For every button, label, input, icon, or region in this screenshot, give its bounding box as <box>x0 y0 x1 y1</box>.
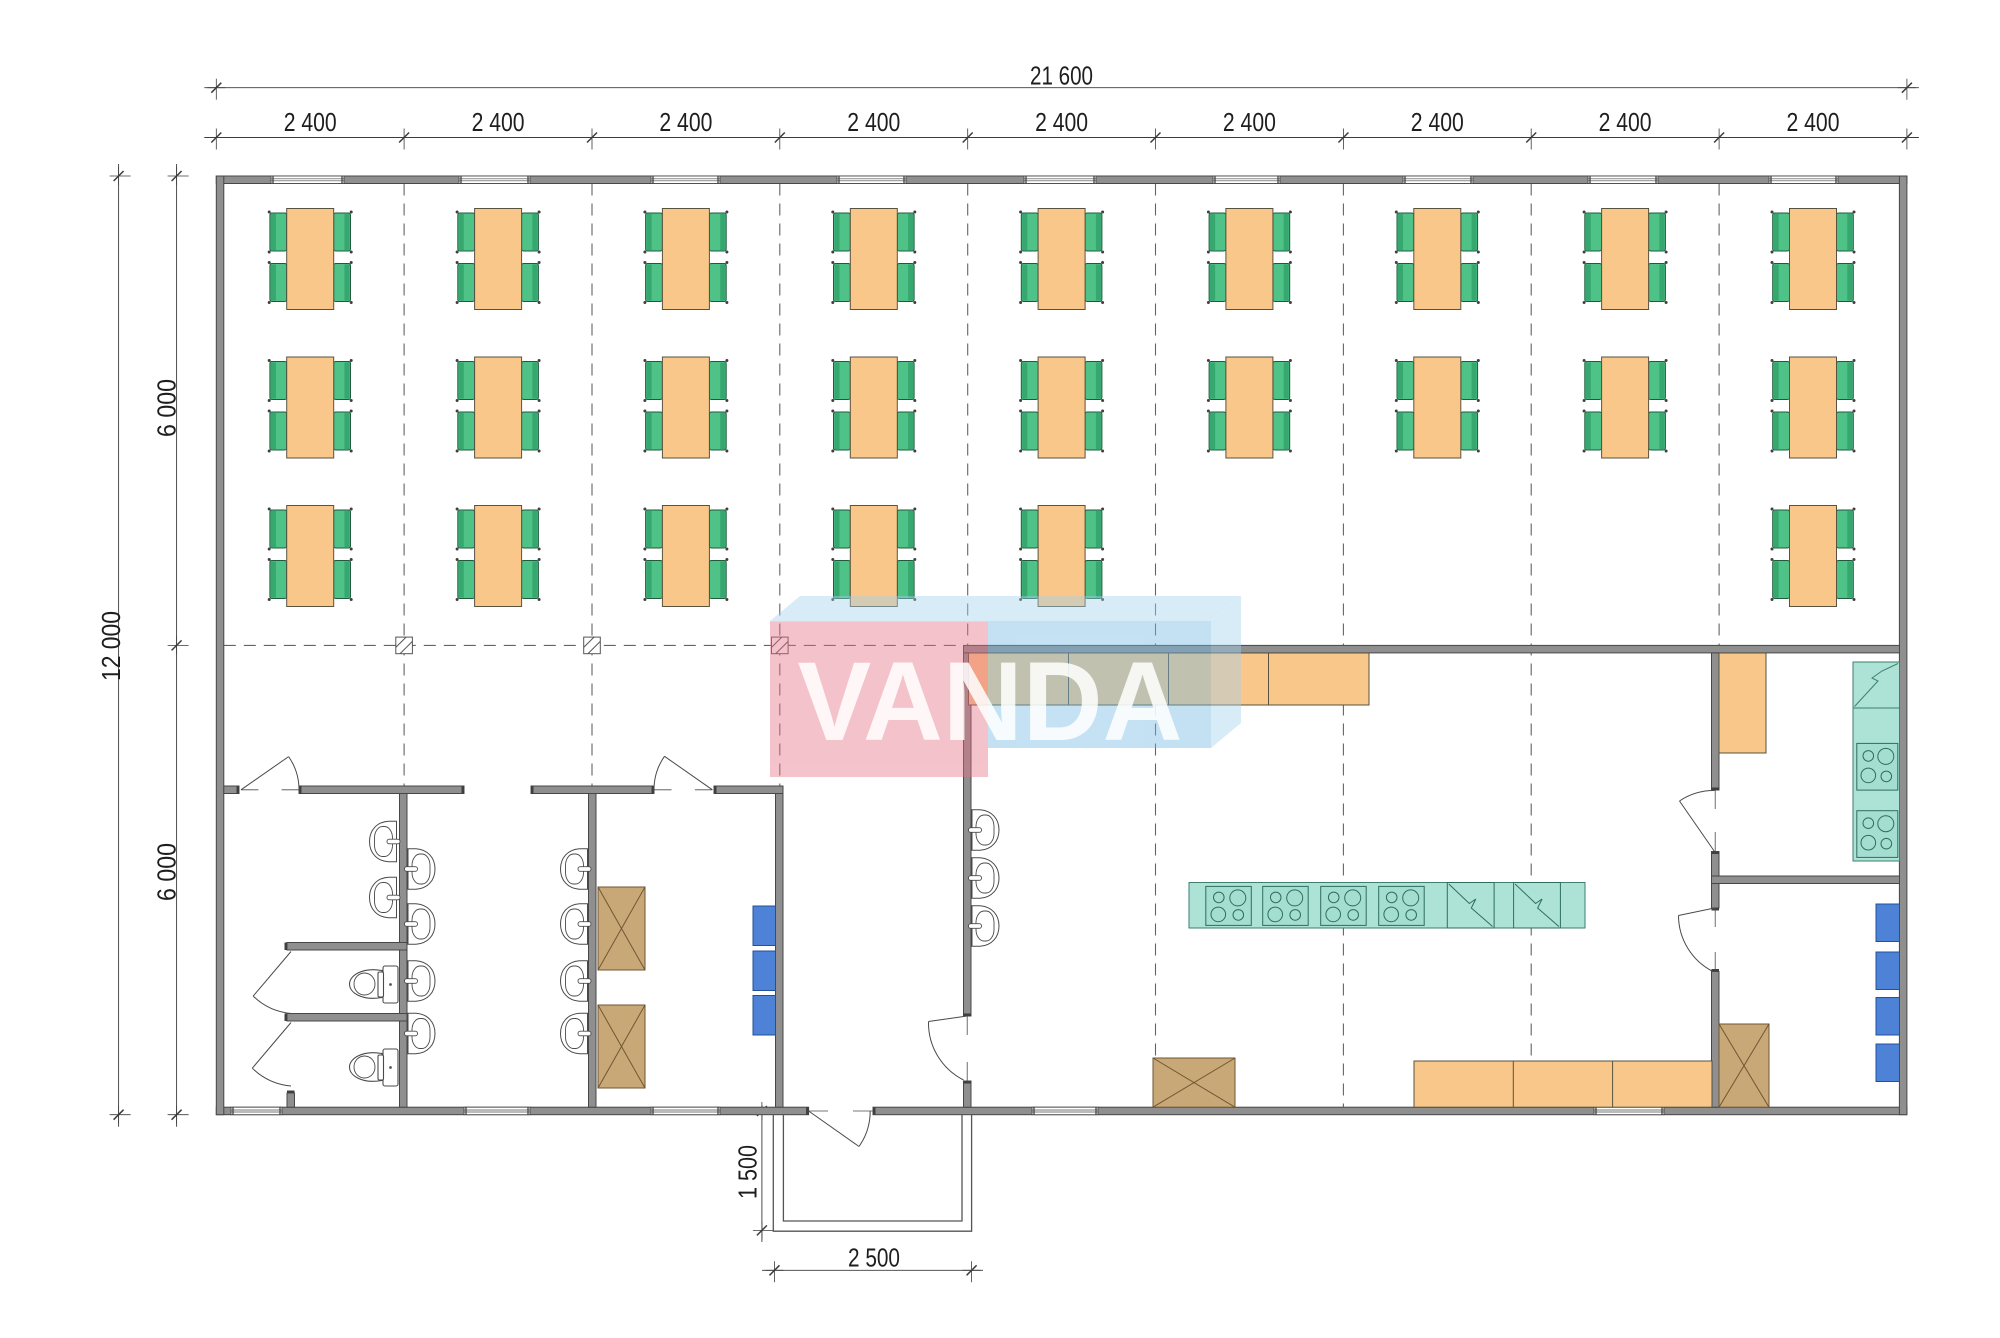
svg-text:2 400: 2 400 <box>1411 107 1464 137</box>
svg-text:2 400: 2 400 <box>1599 107 1652 137</box>
svg-text:2 400: 2 400 <box>1787 107 1840 137</box>
svg-text:2 400: 2 400 <box>472 107 525 137</box>
svg-text:2 400: 2 400 <box>284 107 337 137</box>
svg-text:12 000: 12 000 <box>96 611 126 681</box>
svg-text:6 000: 6 000 <box>152 379 182 437</box>
svg-text:21 600: 21 600 <box>1030 61 1093 91</box>
svg-text:2 400: 2 400 <box>847 107 900 137</box>
svg-text:2 400: 2 400 <box>659 107 712 137</box>
svg-text:VANDA: VANDA <box>798 639 1183 764</box>
svg-text:2 400: 2 400 <box>1035 107 1088 137</box>
svg-text:2 500: 2 500 <box>848 1243 900 1273</box>
svg-text:2 400: 2 400 <box>1223 107 1276 137</box>
svg-text:1 500: 1 500 <box>733 1145 763 1199</box>
svg-text:6 000: 6 000 <box>152 843 182 901</box>
